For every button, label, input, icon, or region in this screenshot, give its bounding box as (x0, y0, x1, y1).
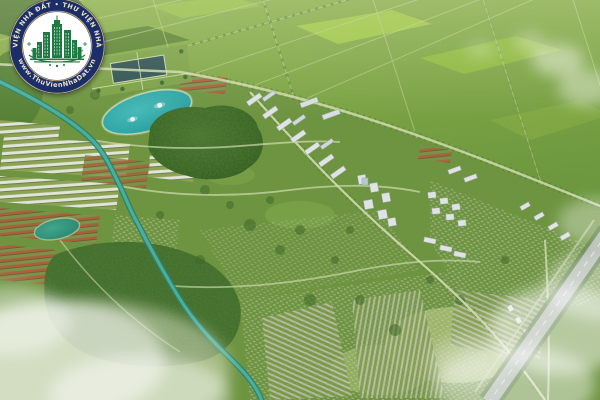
scene: THƯ VIỆN NHÀ ĐẤT • THƯ VIỆN NHÀ ĐẤT www.… (0, 0, 600, 400)
aerial-masterplan-render: THƯ VIỆN NHÀ ĐẤT • THƯ VIỆN NHÀ ĐẤT www.… (0, 0, 600, 400)
